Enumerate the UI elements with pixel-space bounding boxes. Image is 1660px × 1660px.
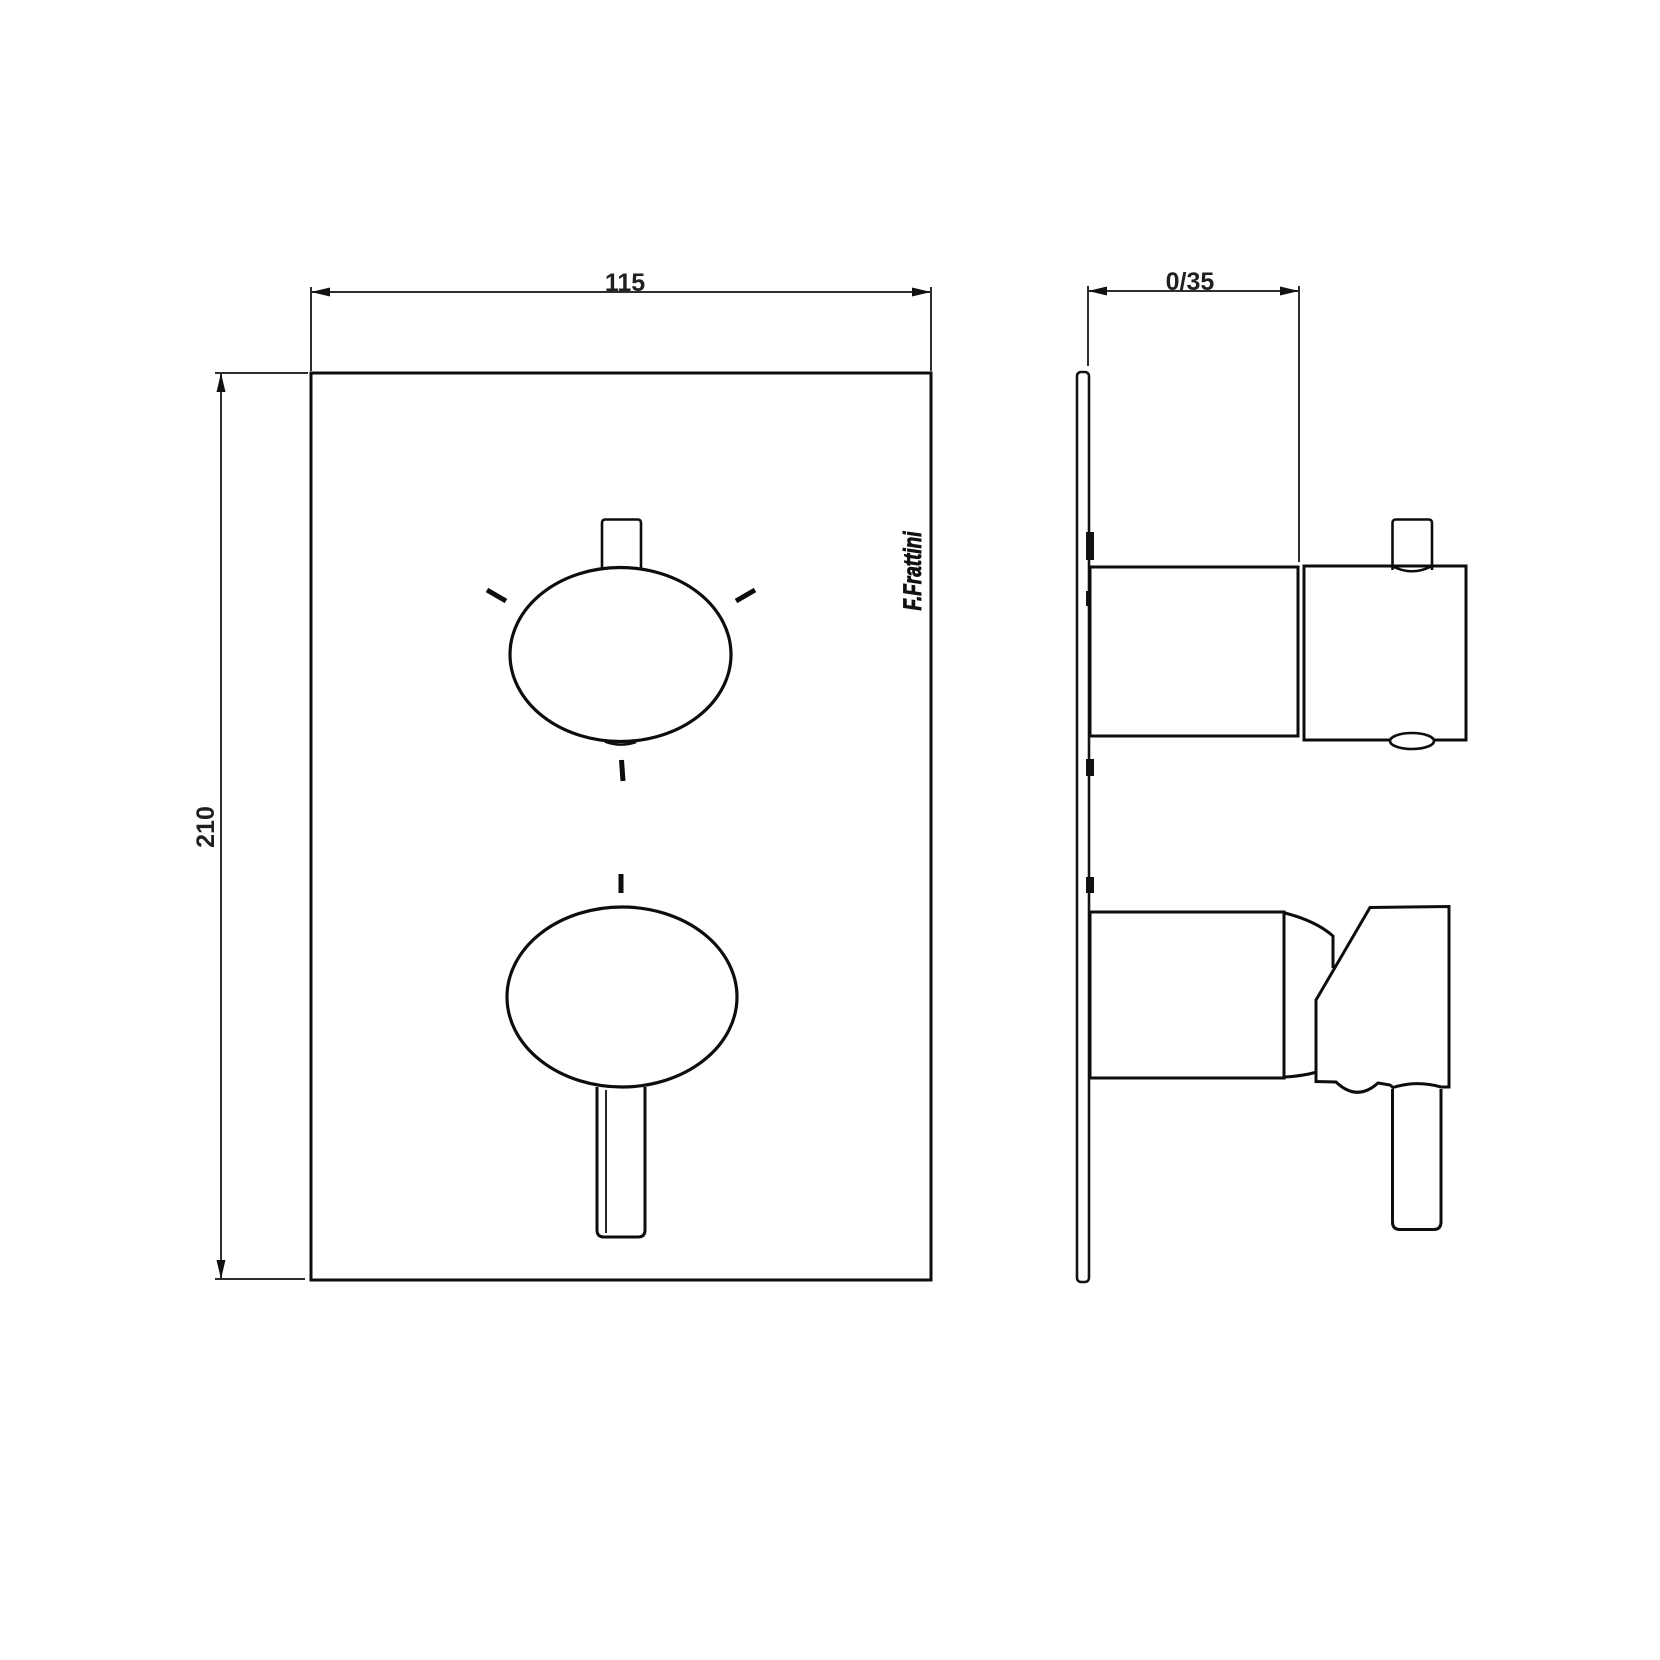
svg-text:0/35: 0/35 — [1166, 268, 1215, 296]
svg-text:210: 210 — [192, 806, 220, 848]
svg-text:F.Frattini: F.Frattini — [899, 531, 927, 611]
svg-text:115: 115 — [605, 269, 645, 297]
